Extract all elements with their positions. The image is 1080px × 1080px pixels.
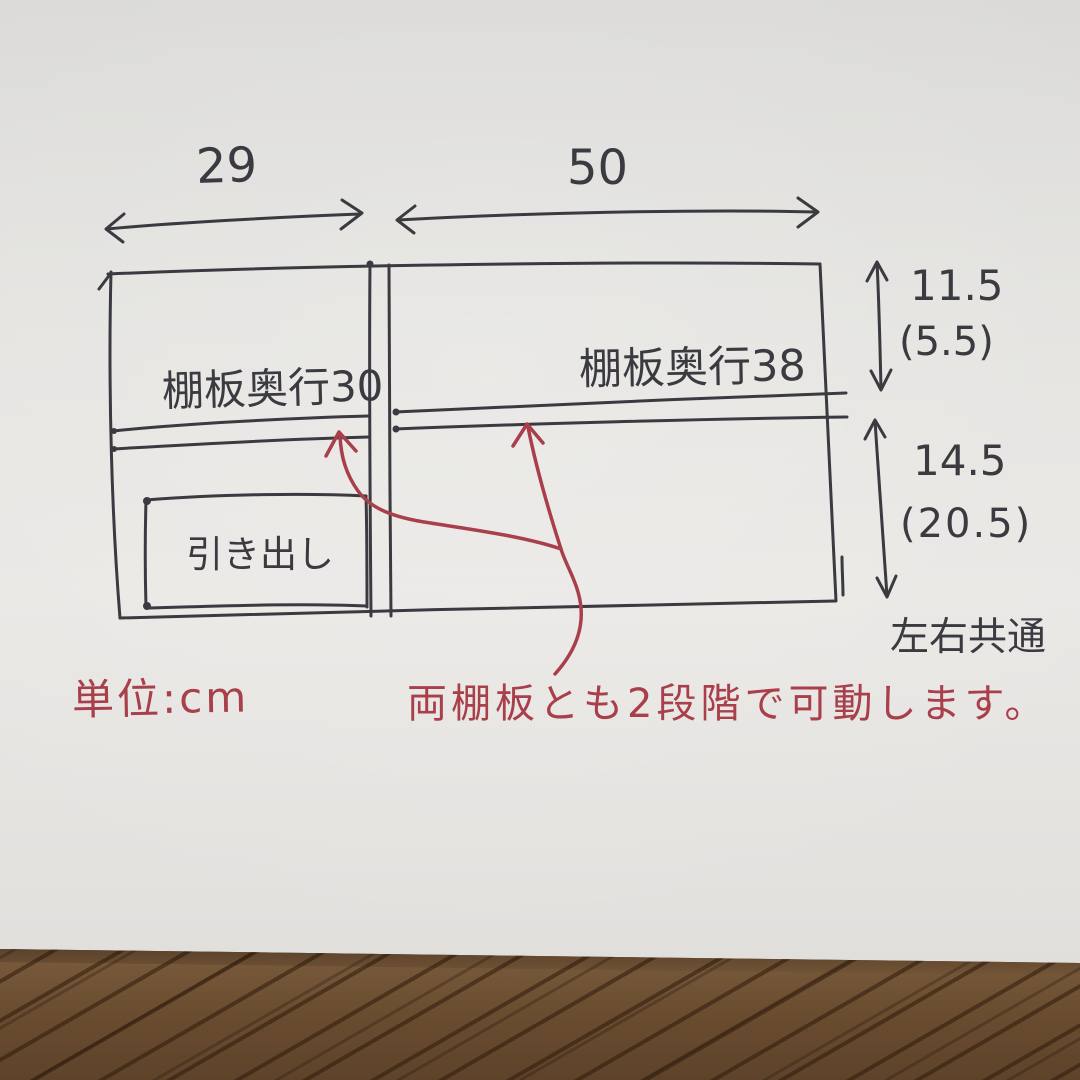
dim-width-right-label: 50 — [567, 144, 628, 192]
shelf-depth-right-label: 棚板奥行38 — [579, 345, 806, 392]
shelf-depth-left-label: 棚板奥行30 — [161, 365, 383, 413]
sides-common-note: 左右共通 — [890, 618, 1046, 657]
dim-height-upper-label: 11.5 — [910, 265, 1004, 307]
red-annotation-arrows — [326, 424, 581, 674]
movable-note: 両棚板とも2段階で可動します。 — [407, 684, 1048, 724]
photo-of-hand-drawn-shelf-diagram: 29 50 棚板奥行30 棚板奥行38 引き出し 11.5 (5.5) 14.5… — [0, 0, 1080, 1080]
dim-height-upper-paren-label: (5.5) — [899, 322, 994, 362]
width-arrow-left — [106, 200, 362, 242]
height-arrow-lower — [865, 420, 896, 597]
width-arrow-right — [397, 198, 818, 233]
height-arrow-upper — [867, 262, 891, 390]
unit-note: 単位:cm — [72, 676, 250, 721]
shelf-right-lines — [393, 393, 848, 433]
center-divider — [367, 261, 392, 617]
drawer-label: 引き出し — [186, 536, 334, 573]
dim-width-left-label: 29 — [195, 141, 258, 191]
dim-height-lower-paren-label: (20.5) — [900, 504, 1032, 544]
dim-height-lower-label: 14.5 — [913, 440, 1007, 482]
